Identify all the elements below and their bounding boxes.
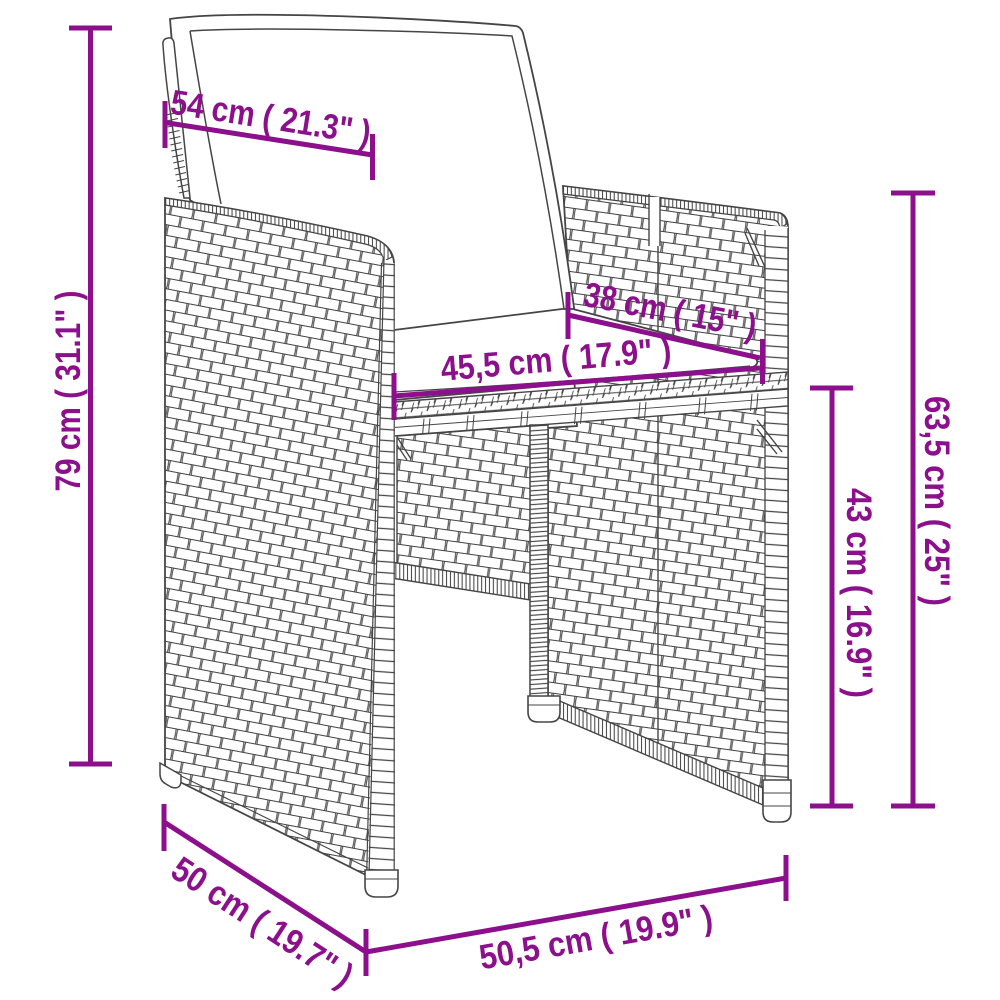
- svg-text:63,5 cm ( 25" ): 63,5 cm ( 25" ): [917, 396, 956, 606]
- svg-text:79 cm ( 31.1" ): 79 cm ( 31.1" ): [49, 291, 88, 492]
- svg-text:43 cm ( 16.9" ): 43 cm ( 16.9" ): [839, 488, 878, 698]
